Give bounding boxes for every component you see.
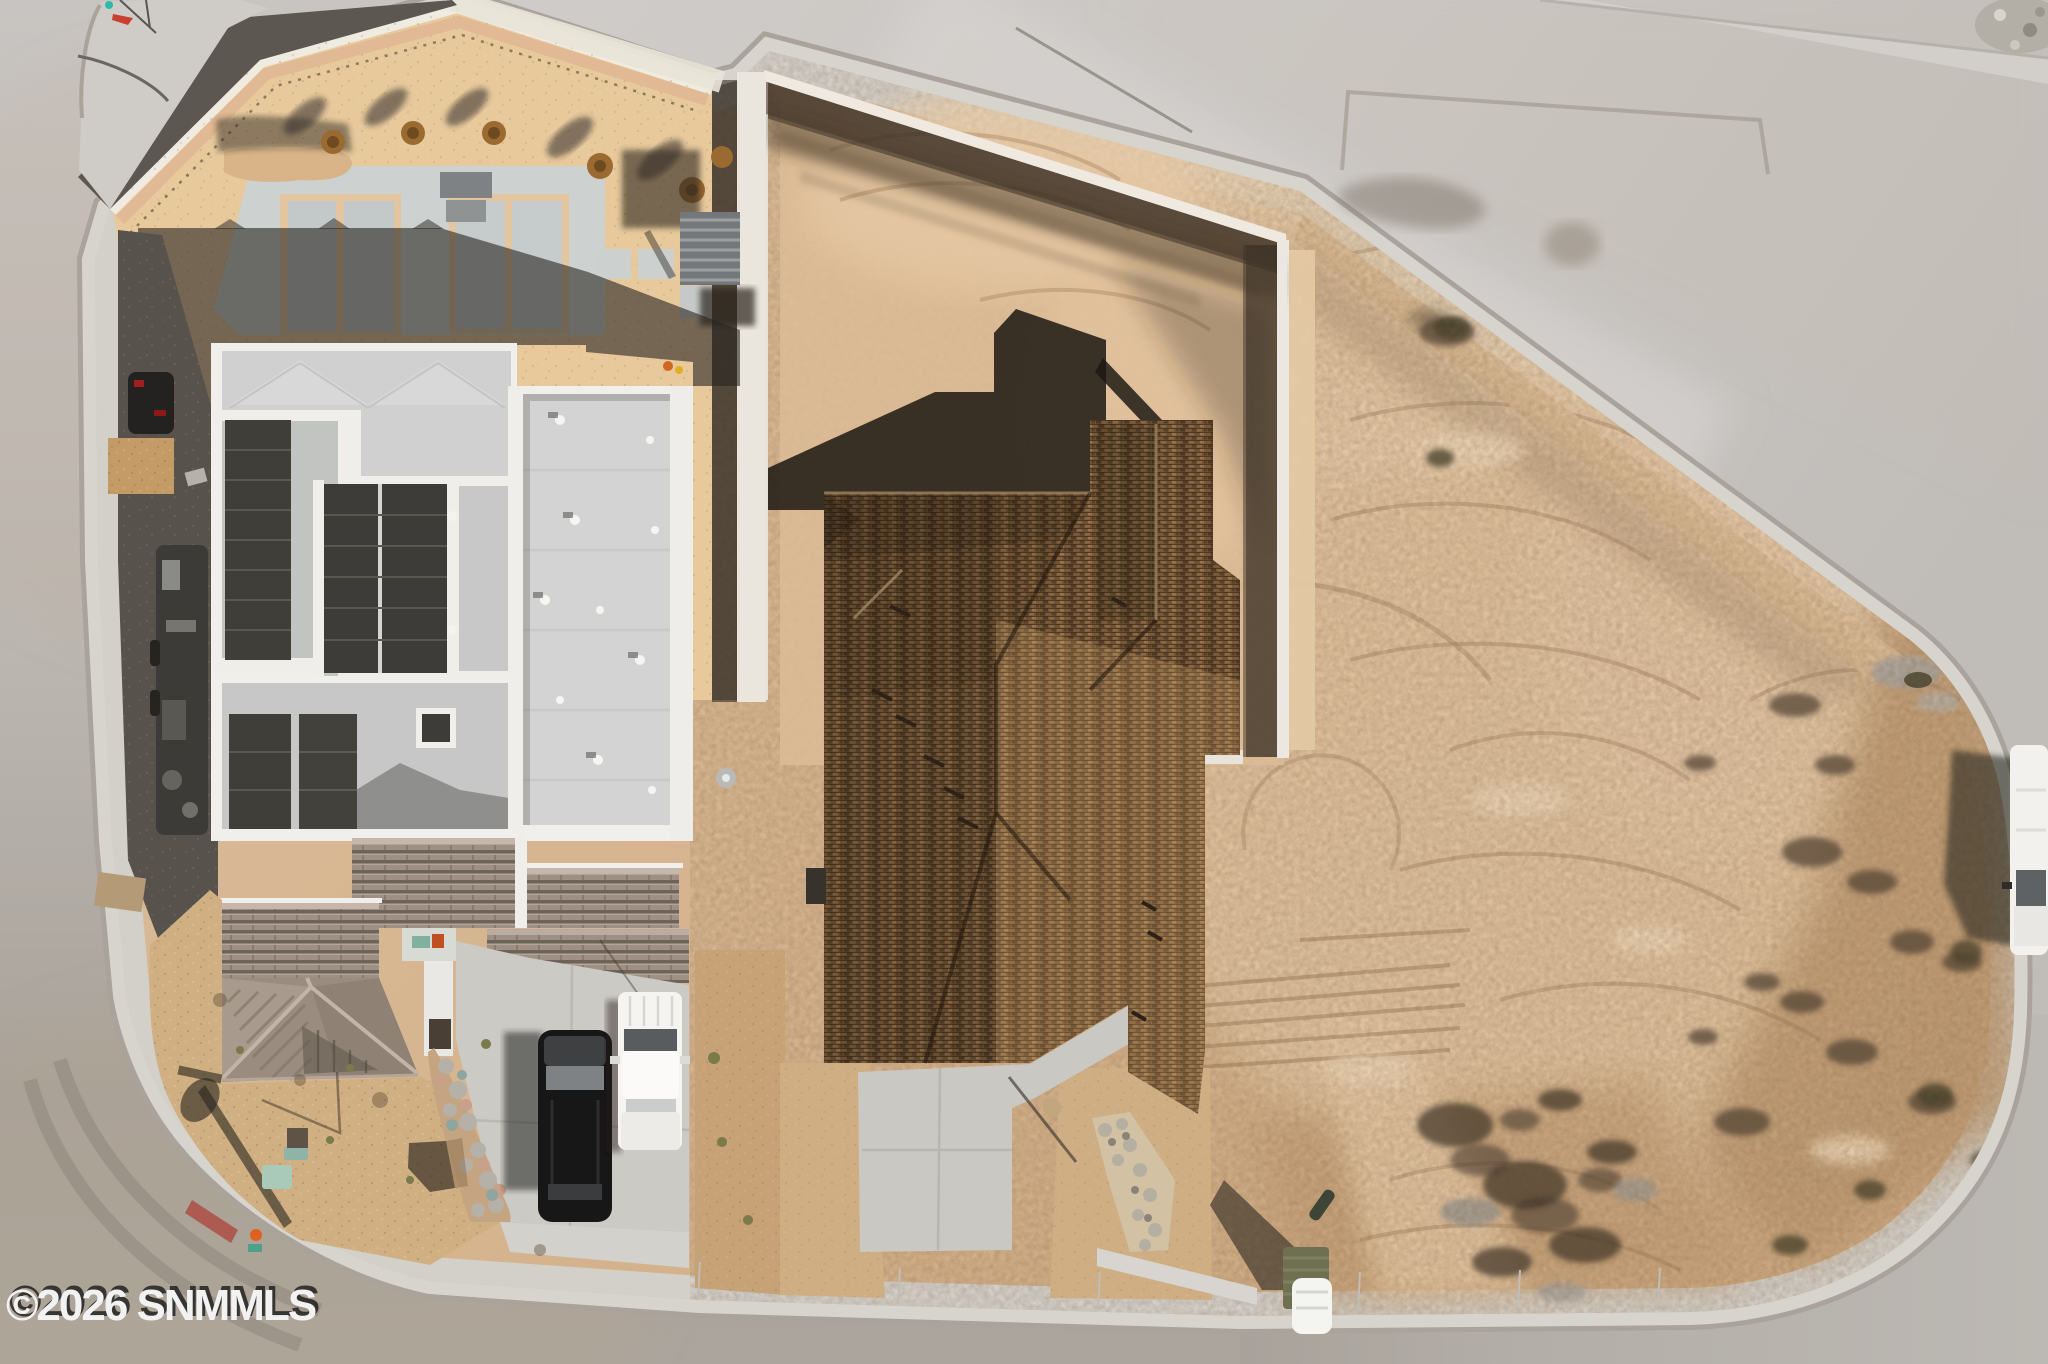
svg-text:©2026 SNMMLS: ©2026 SNMMLS bbox=[6, 1281, 316, 1330]
